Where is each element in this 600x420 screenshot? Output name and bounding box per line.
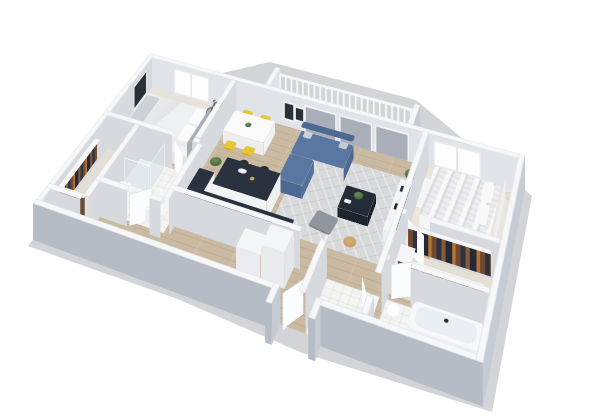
closet-right-south-wall-face-1	[386, 260, 389, 300]
entry-jamb-right-south	[308, 317, 315, 361]
window-mullion	[456, 148, 457, 171]
entry-jamb-left-south	[265, 302, 272, 345]
bathroom-left-south-wall-face-2	[149, 198, 160, 238]
wall-frame-art-1	[284, 101, 295, 123]
floorplan-render	[0, 0, 600, 420]
window-mullion	[191, 74, 192, 96]
